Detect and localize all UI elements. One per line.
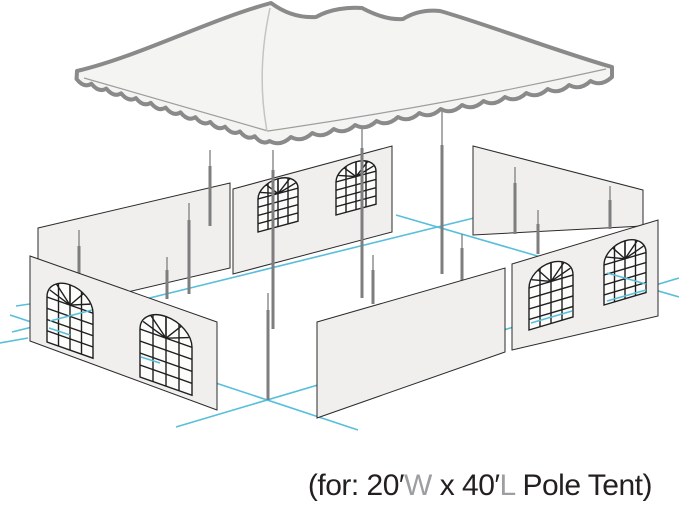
caption-prefix: (for: 20′ — [308, 469, 404, 502]
caption-suffix: Pole Tent) — [515, 469, 652, 502]
canopy — [77, 3, 612, 143]
caption-length-letter: L — [500, 469, 515, 502]
caption-mid: x 40′ — [432, 469, 500, 502]
caption: (for: 20′W x 40′L Pole Tent) — [308, 469, 652, 503]
diagram-canvas — [0, 0, 679, 510]
wall-panel-back-windowed — [233, 146, 392, 274]
footprint-tick-left-lower — [0, 338, 28, 343]
canopy-outline — [77, 3, 612, 143]
wall-panel-front-windowed — [512, 220, 658, 350]
tent-assembly-diagram: (for: 20′W x 40′L Pole Tent) — [0, 0, 679, 510]
caption-width-letter: W — [404, 469, 432, 502]
wall-panel-right-end-plain — [473, 146, 643, 235]
wall-panel-front-plain — [317, 268, 505, 418]
